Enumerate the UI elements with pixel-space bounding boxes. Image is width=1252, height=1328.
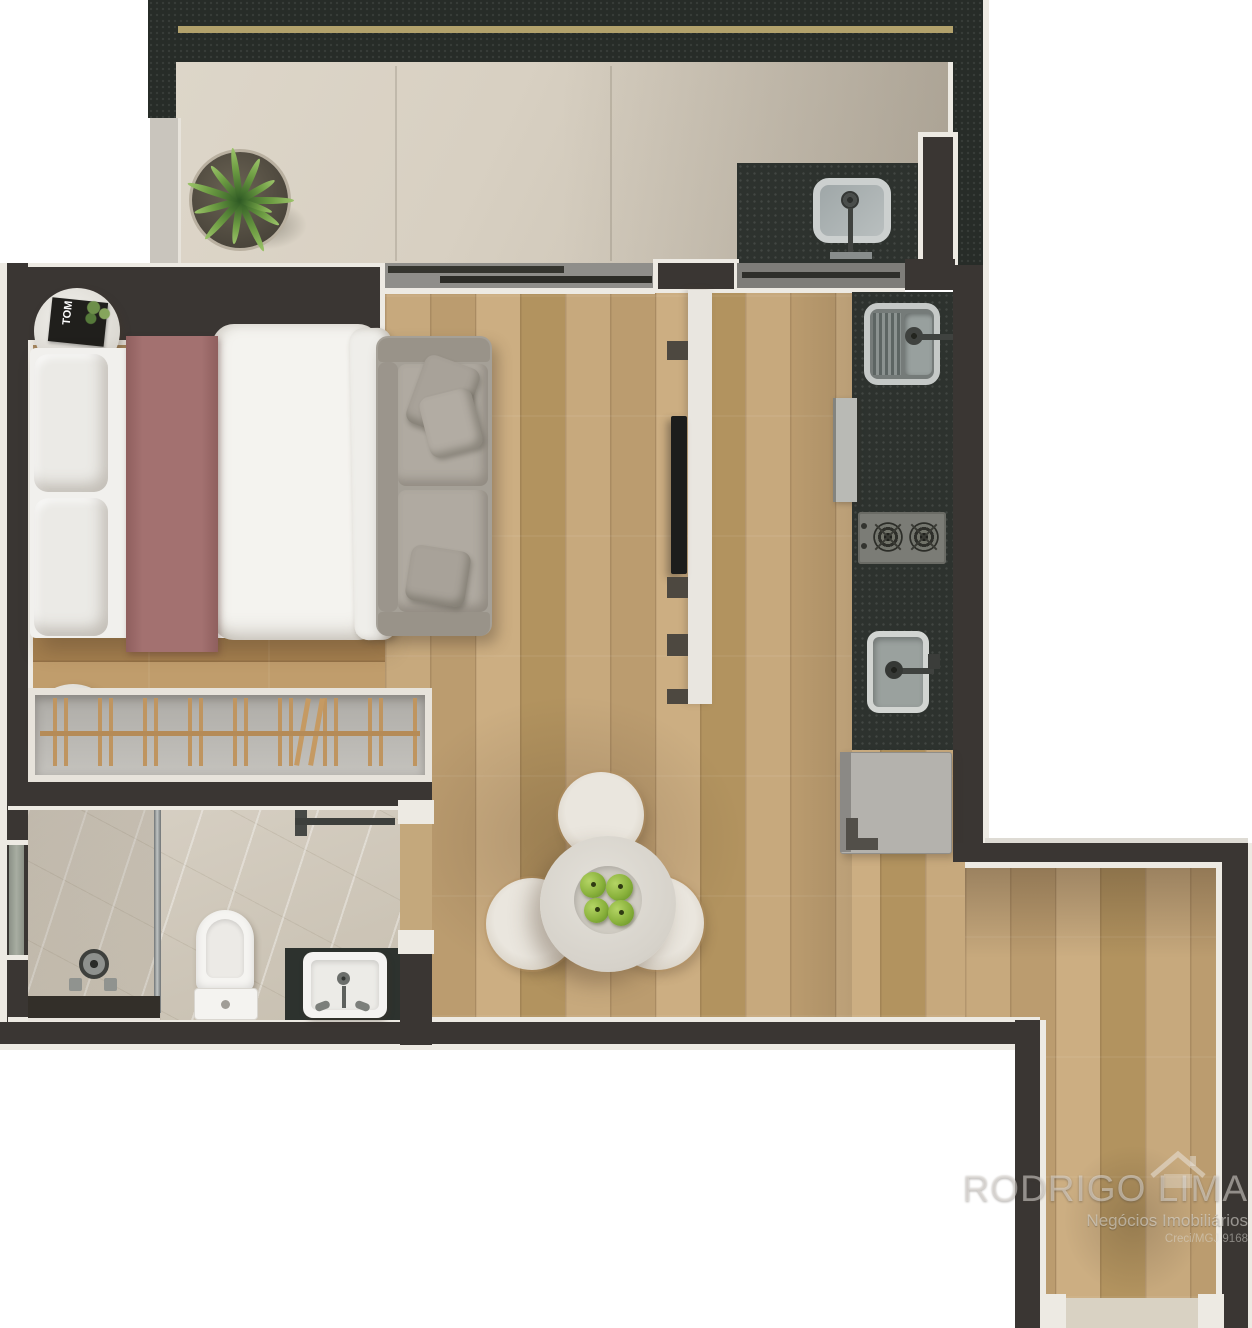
shower-mixer-valve [79,949,109,979]
bathroom-door-jamb [398,930,434,954]
toilet-flush-button [221,1000,230,1009]
sliding-door-sill [385,288,655,294]
sofa-armrest [378,612,490,636]
magazine-title: TOM [60,297,75,328]
corridor-floor-shadow-low [1040,1120,1226,1320]
sofa-pillow [404,544,472,609]
kitchen-floor-shadow [712,292,852,1017]
balcony-tile-seam [395,66,397,261]
utility-sink [864,303,940,385]
bathroom-window [9,845,24,955]
outside-bottom-left [0,1050,1015,1328]
corner-wall [905,259,955,290]
entry-door-jamb [1198,1294,1224,1328]
corridor-left-wall [1015,1020,1040,1328]
shower-control [69,978,82,991]
corridor-right-outer-line [1248,843,1252,1328]
tv-shelf [667,577,688,598]
left-wall-outer-line [0,263,7,1050]
cooktop-burner [908,521,940,553]
balcony-pier [923,137,953,262]
south-wall-outer-line [0,1044,1040,1050]
right-wall-outer-line [983,0,989,845]
apple [606,874,633,901]
refrigerator-handle-inner [858,818,878,838]
bathroom-north-wall [8,782,432,808]
toilet-bowl [196,910,254,992]
kitchen-faucet-fitting [928,654,940,669]
south-wall [0,1022,1040,1044]
bathroom-faucet [337,972,350,985]
outside-top-right [988,0,1252,843]
entry-door-jamb [1040,1294,1066,1328]
balcony-low-wall [150,118,181,263]
shower-control [104,978,117,991]
shower-glass-partition [154,810,161,1013]
apple [580,872,606,898]
bathroom-doorway [400,824,432,930]
balcony-left-wall [148,0,178,118]
utility-faucet-head [905,327,923,345]
bathroom-door-jamb [398,800,434,824]
tv-shelf [667,689,688,704]
balcony-sink-drain [841,191,859,209]
corridor-top-wall [953,843,1248,862]
cooktop-knob [861,523,867,529]
corridor-right-wall [1222,843,1248,1328]
wardrobe-rail [40,731,420,736]
bed-pillow [34,498,108,636]
sliding-door-glass [440,276,652,283]
balcony-gold-trim [156,26,975,33]
bathroom-faucet-spout [342,986,346,1008]
kitchen-appliance [833,398,857,502]
balcony-faucet [848,208,853,256]
towel-bar [295,818,395,825]
bathroom-window-frame [7,955,28,960]
bed-runner-blanket [126,336,218,652]
bathroom-window-frame [7,840,28,845]
balcony-faucet-bar [830,252,872,259]
sliding-door-glass [388,266,564,273]
cooktop-burner [872,521,904,553]
kitchen-pass-glass [742,272,900,278]
floor-plan: TOM [0,0,1252,1328]
tv-shelf [667,341,688,360]
apple [608,900,634,926]
corridor-left-inner-line [1040,1020,1046,1294]
corridor-right-inner-line [1216,868,1222,1294]
utility-sink-ribs [873,313,901,375]
bed-pillow [34,354,108,492]
wall-pier [658,263,734,289]
shower-niche [28,996,160,1021]
kitchen-faucet-sprayer [885,661,903,679]
tv-partition-wall [688,290,712,704]
shower-area-shade [28,810,161,1020]
kitchen-right-wall [953,265,983,845]
tv-shelf [667,634,688,656]
cooktop-knob [861,543,867,549]
corridor-top-wall-line [965,862,1248,868]
apple [584,898,609,923]
corridor-floor-shadow [965,868,1227,958]
television [671,416,687,574]
sofa-backrest [378,362,398,612]
entry-door-threshold [1066,1298,1198,1328]
nightstand-plant-sprig [80,294,114,328]
